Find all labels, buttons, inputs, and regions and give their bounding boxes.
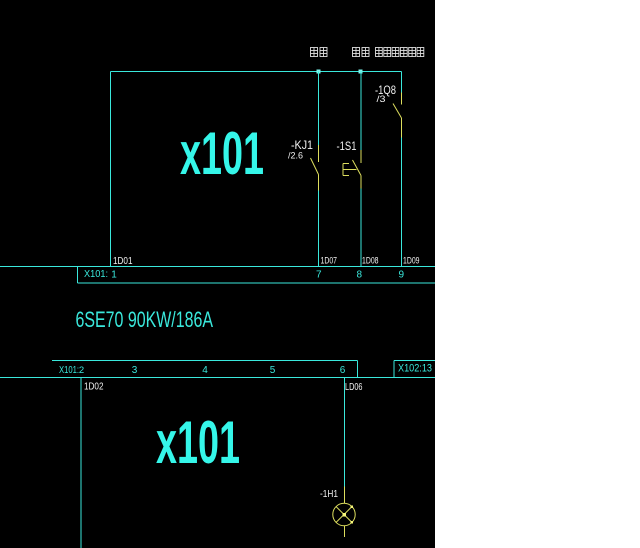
svg-text:LD06: LD06 [345, 381, 363, 393]
svg-text:x101: x101 [156, 409, 240, 476]
svg-text:1D01: 1D01 [113, 255, 133, 267]
svg-text:x101: x101 [180, 120, 264, 187]
svg-text:1D02: 1D02 [84, 381, 104, 393]
svg-text:/2.6: /2.6 [288, 151, 303, 162]
svg-text:1D09: 1D09 [403, 256, 420, 266]
svg-text:X101:: X101: [84, 269, 108, 280]
svg-text:X102:13: X102:13 [398, 363, 432, 375]
svg-text:X101:: X101: [59, 365, 79, 376]
svg-text:4: 4 [202, 365, 208, 376]
svg-text:1D07: 1D07 [321, 256, 338, 266]
svg-text:6SE70 90KW/186A: 6SE70 90KW/186A [76, 307, 214, 332]
svg-text:3: 3 [132, 365, 138, 376]
svg-text:-1H1: -1H1 [320, 489, 338, 500]
svg-text:1D08: 1D08 [362, 256, 379, 266]
svg-text:7: 7 [316, 270, 322, 281]
svg-text:9: 9 [399, 270, 405, 281]
svg-text:-1S1: -1S1 [337, 139, 357, 153]
svg-text:6: 6 [340, 365, 346, 376]
svg-text:8: 8 [357, 270, 363, 281]
svg-text:2: 2 [79, 365, 84, 376]
svg-text:1: 1 [111, 270, 117, 281]
svg-text:5: 5 [270, 365, 276, 376]
svg-text:/3: /3 [377, 94, 386, 105]
